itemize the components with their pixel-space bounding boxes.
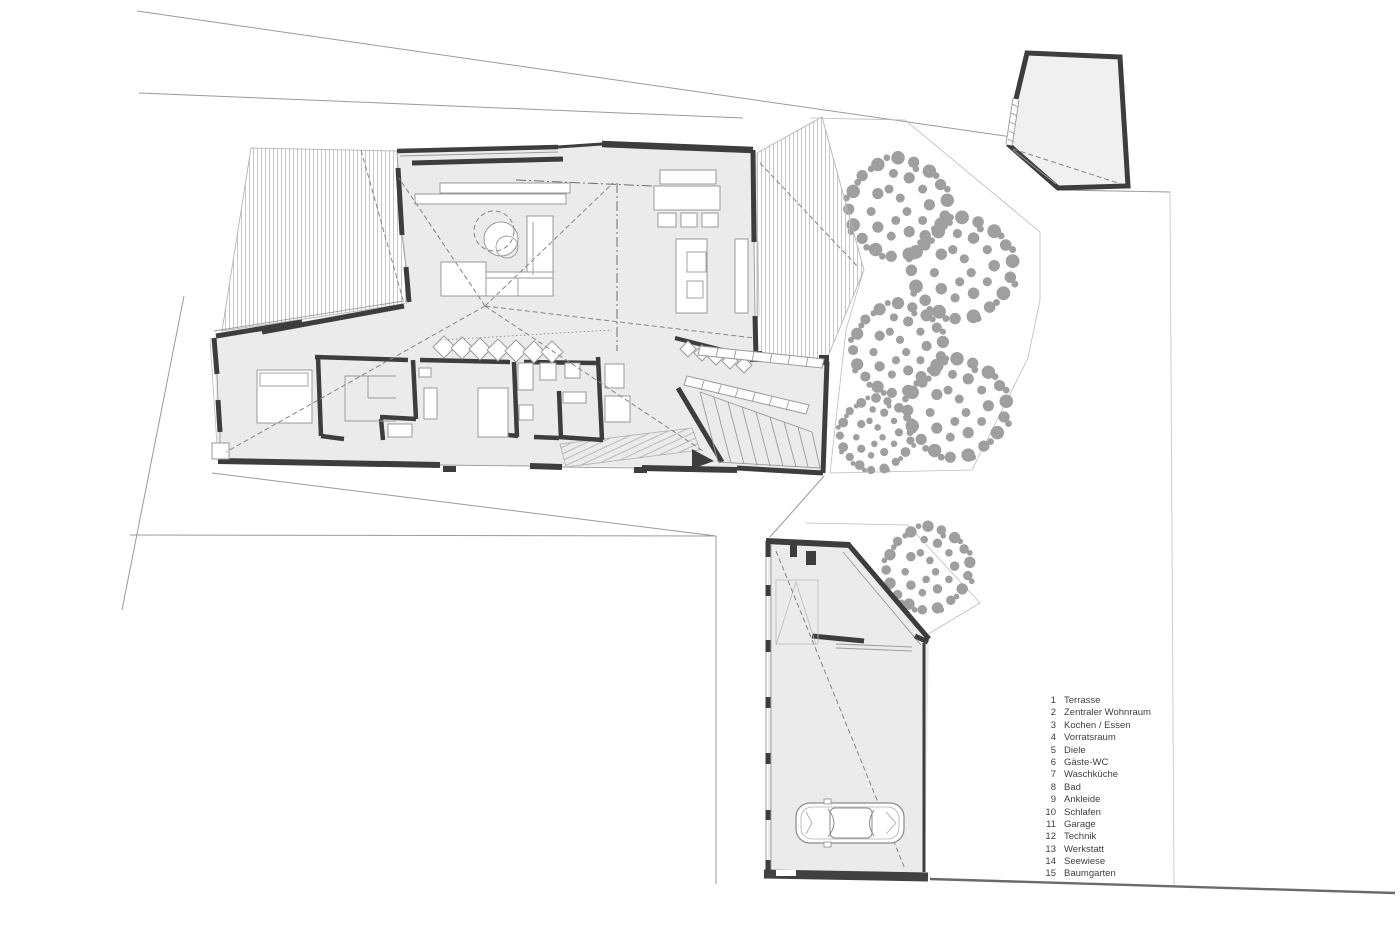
legend-item-number: 13 [1040,844,1056,856]
legend-item: 9Ankleide [1040,794,1151,806]
coffee-table [441,262,486,296]
legend-item-label: Baumgarten [1064,868,1116,880]
legend-item-number: 15 [1040,868,1056,880]
legend-item: 4Vorratsraum [1040,732,1151,744]
legend-item-label: Ankleide [1064,794,1100,806]
retaining-wall-line [930,879,1395,893]
kitchen-counter [735,239,748,313]
site-plan-canvas: 1Terrasse2Zentraler Wohnraum3Kochen / Es… [0,0,1400,933]
tree-canopy-icon [906,211,1020,325]
legend-item: 12Technik [1040,831,1151,843]
corner-box [212,443,229,459]
legend-item-label: Gäste-WC [1064,757,1108,769]
kitchen-island [676,239,707,313]
workshop-building [1006,53,1128,188]
legend-item-number: 5 [1040,745,1056,757]
legend-item-label: Garage [1064,819,1096,831]
legend-item: 6Gäste-WC [1040,757,1151,769]
legend-item-label: Werkstatt [1064,844,1104,856]
bed [257,370,312,423]
legend-item-number: 7 [1040,769,1056,781]
legend-item-label: Vorratsraum [1064,732,1116,744]
legend-item: 15Baumgarten [1040,868,1151,880]
legend: 1Terrasse2Zentraler Wohnraum3Kochen / Es… [1040,695,1151,881]
legend-item-number: 8 [1040,782,1056,794]
legend-item: 7Waschküche [1040,769,1151,781]
legend-item-number: 2 [1040,707,1056,719]
dining-set [654,170,720,227]
legend-item-number: 14 [1040,856,1056,868]
legend-item: 11Garage [1040,819,1151,831]
legend-item-number: 11 [1040,819,1056,831]
garage-building [764,540,929,877]
legend-item: 2Zentraler Wohnraum [1040,707,1151,719]
tree-canopy-icon [836,393,917,474]
legend-list: 1Terrasse2Zentraler Wohnraum3Kochen / Es… [1040,695,1151,881]
legend-item-label: Bad [1064,782,1081,794]
legend-item-label: Zentraler Wohnraum [1064,707,1151,719]
legend-item-number: 3 [1040,720,1056,732]
west-terrace [222,148,409,331]
legend-item-number: 6 [1040,757,1056,769]
legend-item-number: 10 [1040,807,1056,819]
legend-item-label: Waschküche [1064,769,1118,781]
legend-item: 10Schlafen [1040,807,1151,819]
legend-item-label: Terrasse [1064,695,1100,707]
legend-item-number: 4 [1040,732,1056,744]
tree-canopy-icon [843,151,954,262]
legend-item-number: 12 [1040,831,1056,843]
legend-item: 8Bad [1040,782,1151,794]
legend-item-number: 9 [1040,794,1056,806]
site-plan-drawing [0,0,1400,933]
legend-item-label: Technik [1064,831,1096,843]
legend-item-label: Schlafen [1064,807,1101,819]
legend-item: 3Kochen / Essen [1040,720,1151,732]
tree-canopy-icon [902,352,1013,463]
legend-item-label: Diele [1064,745,1086,757]
legend-item: 13Werkstatt [1040,844,1151,856]
legend-item: 5Diele [1040,745,1151,757]
car-icon [796,799,904,847]
legend-item: 14Seewiese [1040,856,1151,868]
legend-item-label: Seewiese [1064,856,1105,868]
legend-item-label: Kochen / Essen [1064,720,1131,732]
legend-item: 1Terrasse [1040,695,1151,707]
legend-item-number: 1 [1040,695,1056,707]
